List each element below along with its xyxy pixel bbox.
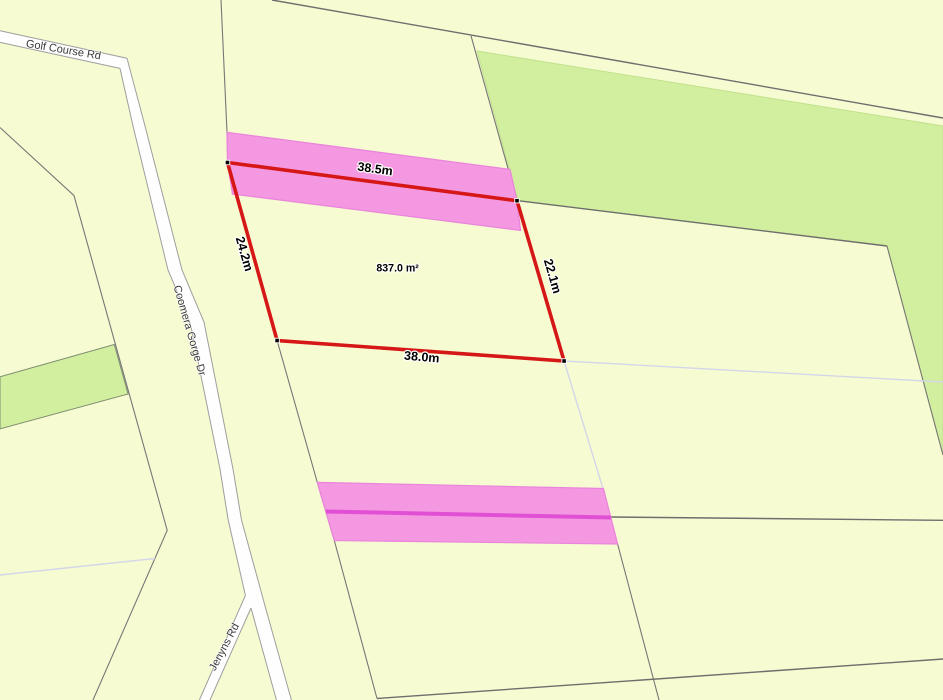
svg-text:837.0 m²: 837.0 m²	[376, 263, 419, 275]
